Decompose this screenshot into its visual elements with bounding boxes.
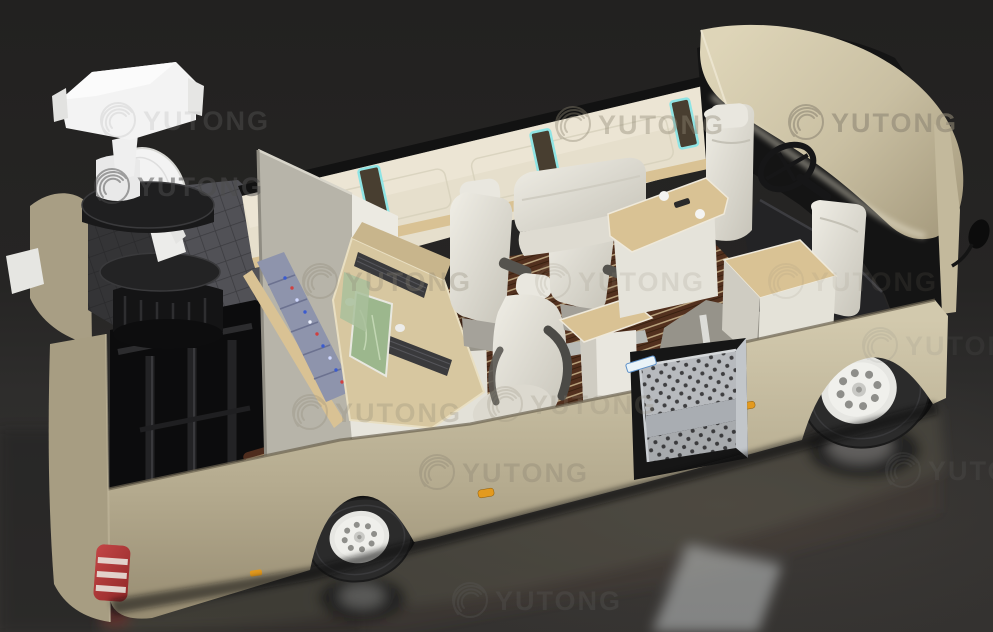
bus-cutaway-render: YUTONG YUTONG YUTONG YUTONG YUTONG YUTON… (0, 0, 993, 632)
watermark-text: YUTONG (345, 267, 472, 297)
watermark-text: YUTONG (831, 108, 958, 138)
table-fitting (695, 209, 705, 219)
mouse (395, 324, 405, 332)
watermark-text: YUTONG (598, 110, 725, 140)
table-fitting (659, 191, 669, 201)
step-side-wall (736, 338, 748, 458)
watermark-text: YUTONG (335, 398, 462, 428)
watermark-text: YUTONG (928, 456, 993, 486)
watermark-text: YUTONG (137, 172, 264, 202)
watermark-text: YUTONG (495, 586, 622, 616)
watermark-text: YUTONG (462, 458, 589, 488)
watermark-text: YUTONG (143, 106, 270, 136)
watermark-text: YUTONG (530, 390, 657, 420)
rear-rim-reflection (340, 584, 384, 608)
watermark-text: YUTONG (578, 267, 705, 297)
tail-light (93, 544, 131, 602)
watermark-text: YUTONG (811, 267, 938, 297)
watermark-text: YUTONG (905, 331, 993, 361)
